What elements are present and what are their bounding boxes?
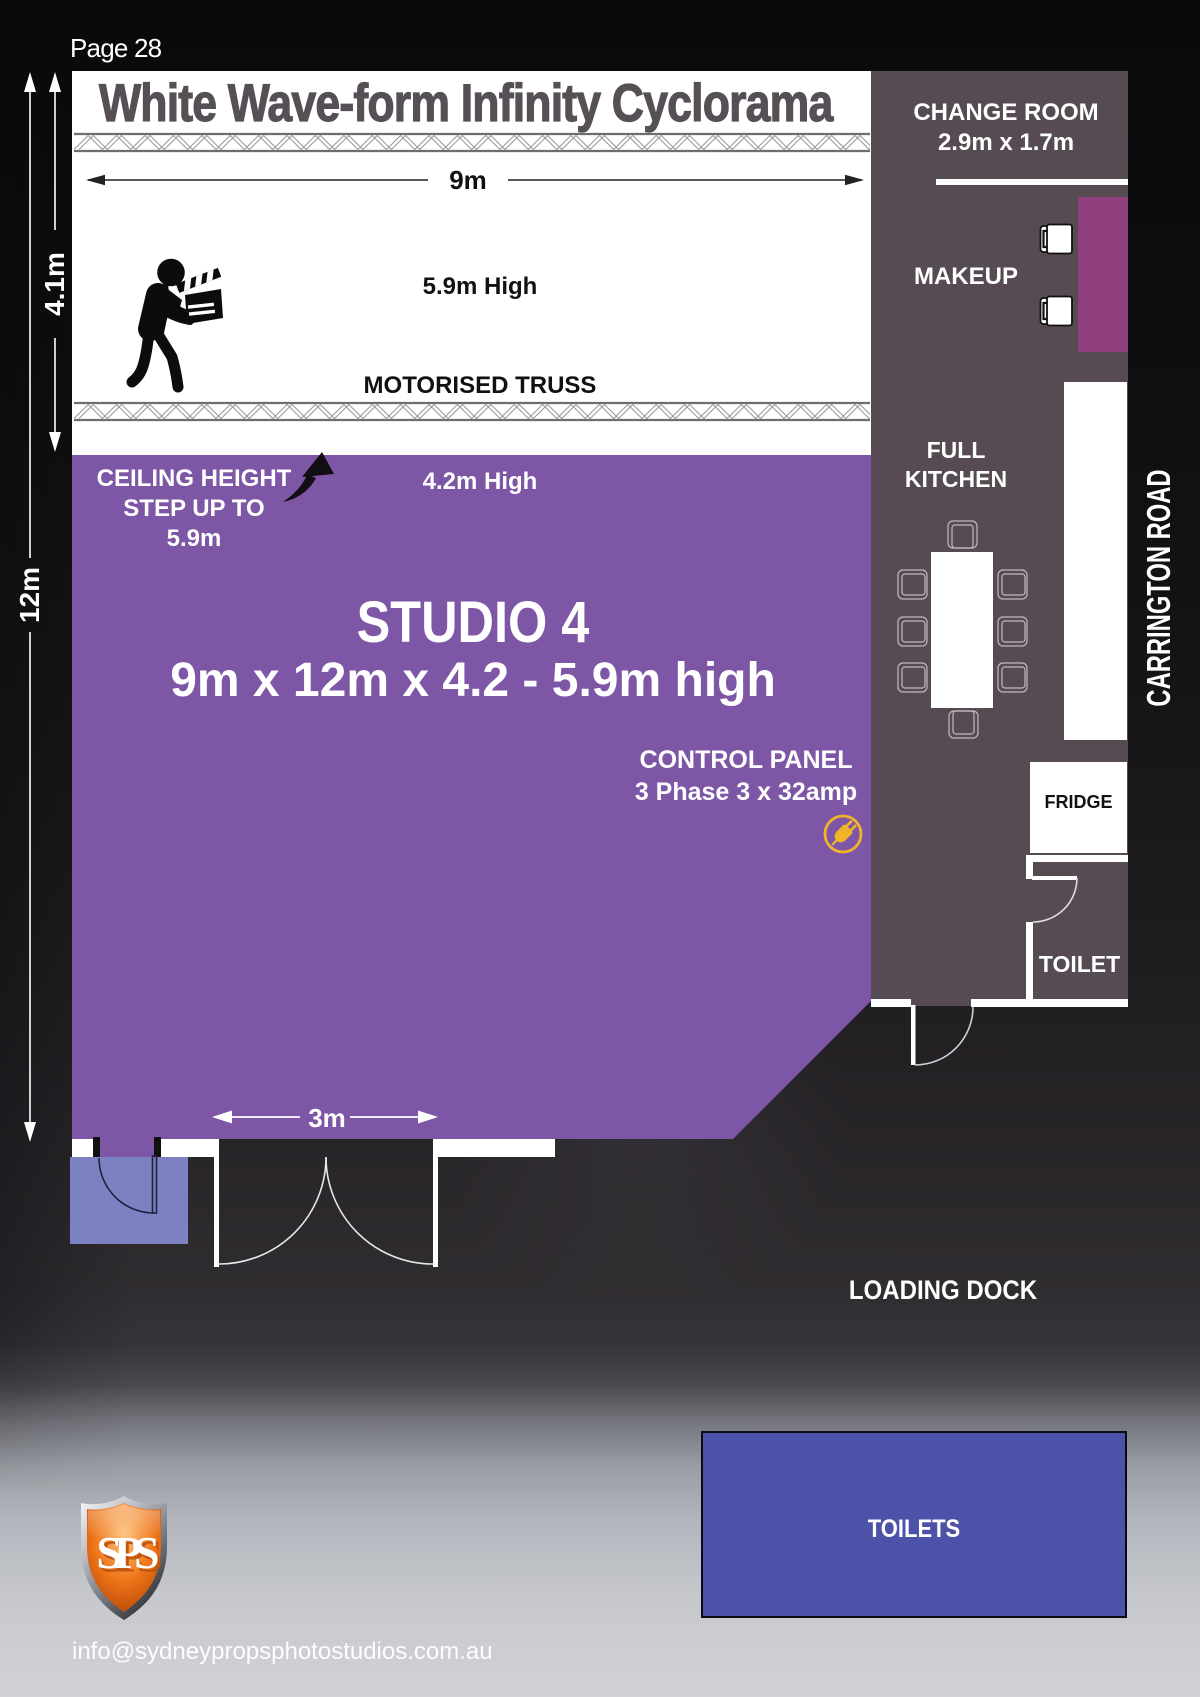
svg-text:SPS: SPS: [96, 1527, 158, 1578]
